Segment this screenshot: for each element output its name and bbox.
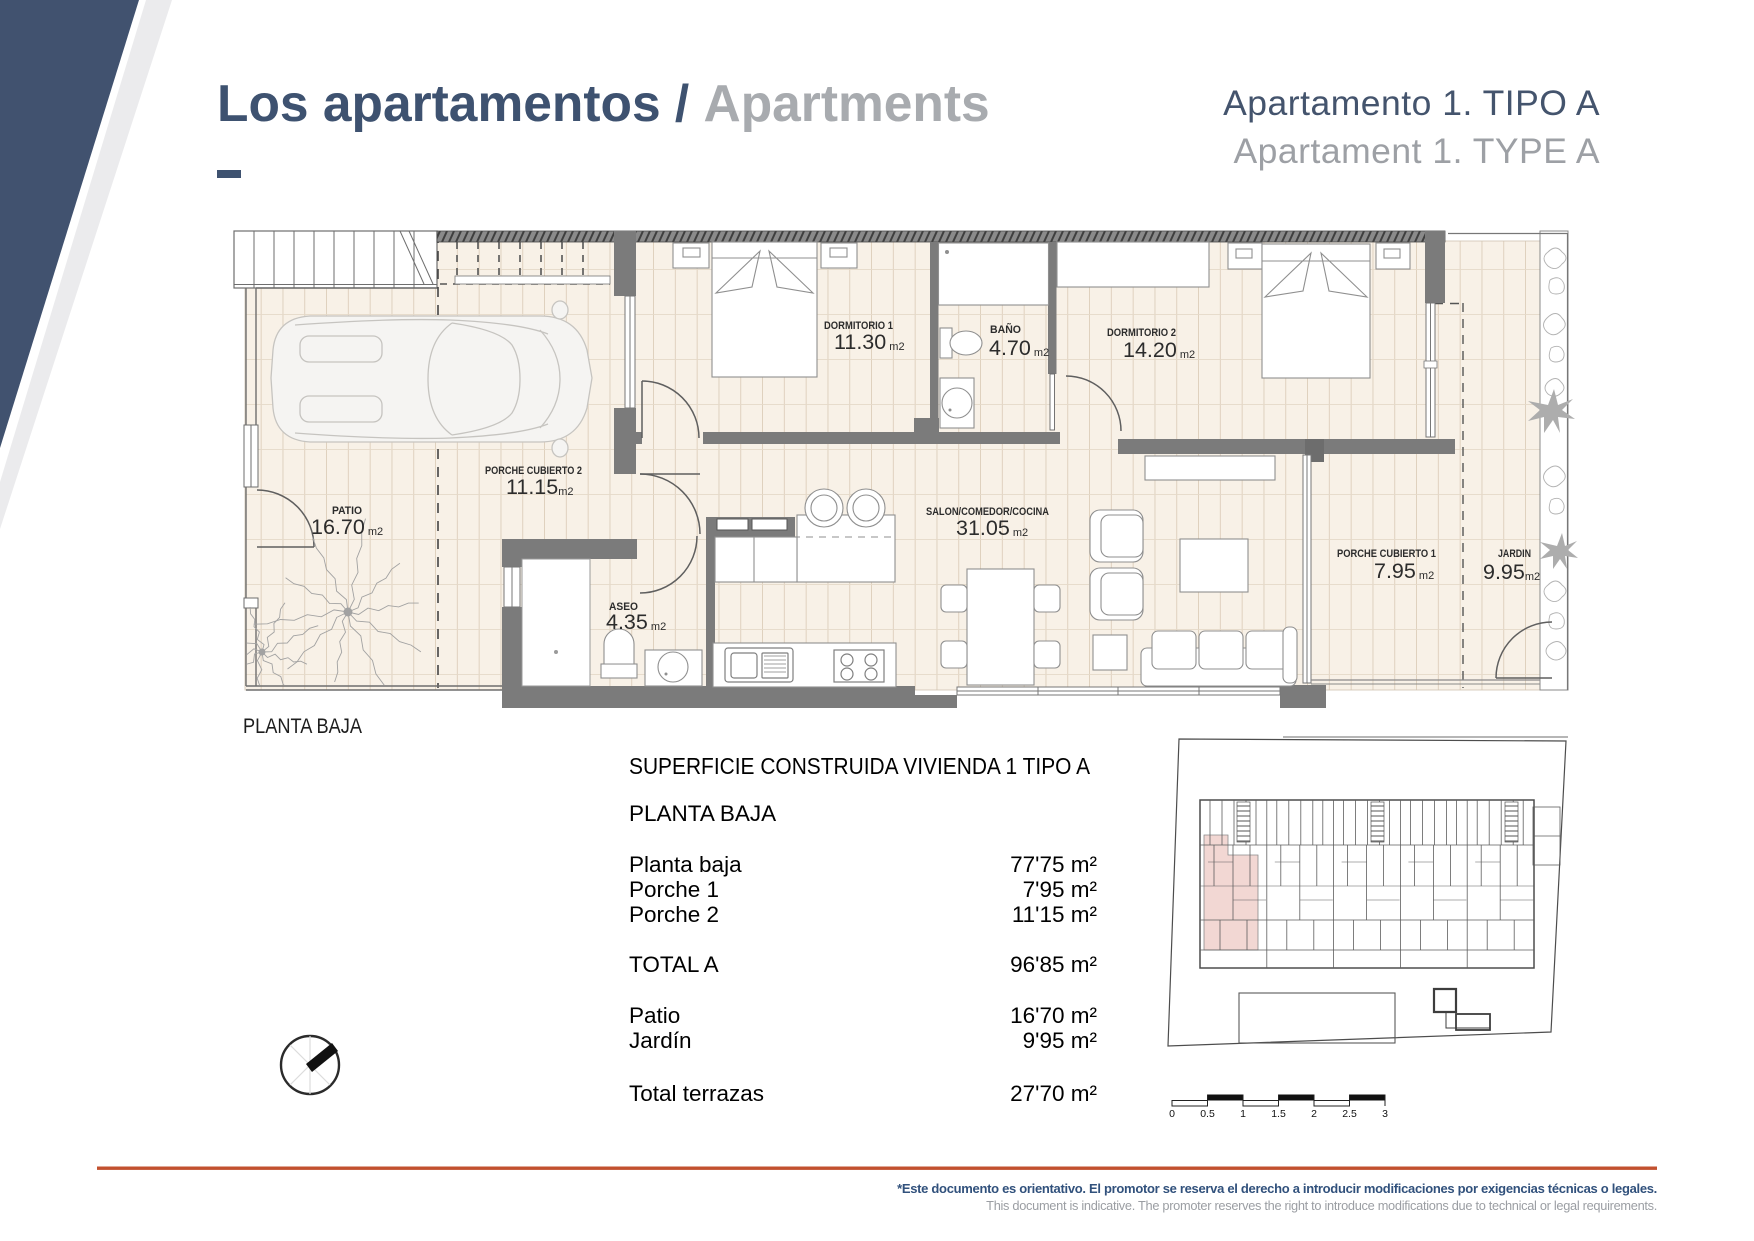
svg-text:JARDIN: JARDIN [1498, 548, 1531, 560]
svg-text:1.5: 1.5 [1271, 1108, 1286, 1120]
svg-text:0: 0 [1169, 1108, 1175, 1120]
svg-text:2: 2 [1311, 1108, 1317, 1120]
svg-text:PLANTA BAJA: PLANTA BAJA [243, 715, 362, 738]
svg-text:3: 3 [1382, 1108, 1388, 1120]
svg-text:2.5: 2.5 [1342, 1108, 1357, 1120]
svg-text:0.5: 0.5 [1200, 1108, 1215, 1120]
svg-text:1: 1 [1240, 1108, 1246, 1120]
svg-text:BAÑO: BAÑO [990, 323, 1021, 336]
